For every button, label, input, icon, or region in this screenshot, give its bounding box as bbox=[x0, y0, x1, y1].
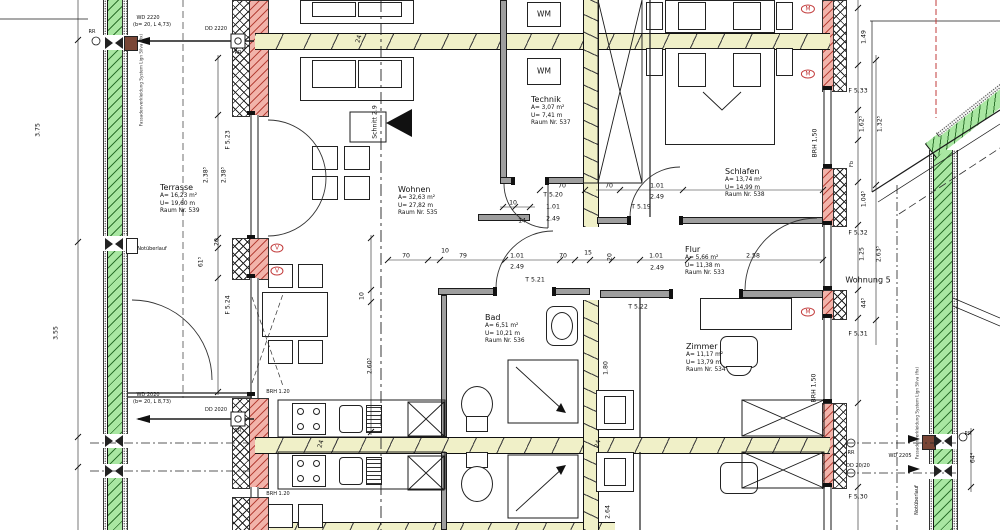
room-label-terrasse: TerrasseA= 16,23 m²U= 19,60 mRaum Nr. 53… bbox=[160, 183, 200, 216]
label-10: 10 bbox=[359, 292, 366, 300]
pillow bbox=[678, 53, 706, 87]
label-dd-20-20: DD 20/20 bbox=[846, 463, 870, 469]
label-1-25: 1.25 bbox=[859, 247, 866, 261]
label-1-01: 1.01 bbox=[546, 204, 560, 211]
room-area: A= 5,66 m² bbox=[685, 255, 725, 263]
label-61: 61⁵ bbox=[198, 257, 205, 267]
room-perimeter: U= 7,41 m bbox=[531, 113, 571, 121]
label-20: 20 bbox=[214, 238, 221, 246]
bad-wall-top-a bbox=[438, 288, 494, 295]
room-perimeter: U= 11,38 m bbox=[685, 263, 725, 271]
dining-table bbox=[262, 292, 328, 337]
bad-wall-top-b bbox=[553, 288, 590, 295]
label-wd-2020: WD 2020 bbox=[136, 392, 159, 398]
dining-chair bbox=[298, 340, 323, 364]
side-table bbox=[344, 146, 370, 170]
label-1-01: 1.01 bbox=[510, 253, 524, 260]
room-perimeter: U= 27,82 m bbox=[398, 203, 438, 211]
label-f-5-30: F 5.30 bbox=[848, 494, 867, 501]
label-wohnung-5: Wohnung 5 bbox=[845, 276, 890, 285]
shaft-wall-upper bbox=[583, 0, 599, 227]
label-2-49: 2.49 bbox=[650, 194, 664, 201]
flur-wall-bottom-a bbox=[600, 290, 670, 298]
nightstand bbox=[776, 2, 793, 30]
section-marker-triangle bbox=[386, 109, 412, 137]
label-f-5-33: F 5.33 bbox=[848, 88, 867, 95]
arrow-icon bbox=[136, 37, 150, 45]
label-b-20-l-4-73: (b= 20, L 4,73) bbox=[133, 22, 171, 28]
room-perimeter: U= 14,99 m bbox=[725, 185, 765, 193]
party-wall-right-insulation bbox=[833, 290, 847, 320]
label-1-80: 1.80 bbox=[603, 361, 610, 375]
desk bbox=[700, 298, 792, 330]
washing-machine bbox=[527, 2, 561, 27]
marker-oval-m: M bbox=[801, 308, 815, 317]
label-1-62: 1.62⁵ bbox=[859, 116, 866, 132]
ceiling-beam-bottom bbox=[255, 437, 830, 454]
label-brh-1-20: BRH 1.20 bbox=[266, 491, 289, 497]
armchair bbox=[344, 176, 370, 200]
party-wall-left-masonry bbox=[249, 497, 269, 530]
label-1-01: 1.01 bbox=[650, 183, 664, 190]
pillow bbox=[733, 2, 761, 30]
label-wd-2220: WD 2220 bbox=[136, 15, 159, 21]
desk-chair bbox=[720, 336, 758, 368]
flur-wall-bottom-b bbox=[740, 290, 823, 298]
window-f533-frame bbox=[823, 90, 832, 168]
room-perimeter: U= 10,21 m bbox=[485, 331, 525, 339]
party-wall-right-insulation bbox=[833, 0, 847, 92]
label-brh-1-50: BRH 1,50 bbox=[811, 374, 818, 403]
dining-chair bbox=[268, 504, 293, 528]
room-area: A= 3,07 m² bbox=[531, 105, 571, 113]
label-10: 10 bbox=[509, 200, 517, 207]
label-rr: RR bbox=[89, 29, 96, 35]
bad-wall-left-lower bbox=[441, 452, 447, 530]
label-2-38: 2.38⁵ bbox=[221, 167, 228, 183]
room-label-bad: BadA= 6,51 m²U= 10,21 mRaum Nr. 536 bbox=[485, 313, 525, 346]
label-1-04: 1.04⁵ bbox=[861, 191, 868, 207]
room-room_no: Raum Nr. 538 bbox=[725, 192, 765, 200]
label-fb: Fb bbox=[849, 161, 855, 167]
toilet-icon bbox=[461, 466, 493, 502]
arrow-icon bbox=[908, 465, 920, 473]
label-f-5-31: F 5.31 bbox=[848, 331, 867, 338]
party-wall-right-insulation bbox=[833, 403, 847, 489]
floorplan-canvas: TerrasseA= 16,23 m²U= 19,60 mRaum Nr. 53… bbox=[0, 0, 1000, 530]
label-t-5-22: T 5.22 bbox=[628, 304, 648, 311]
label-not-berlauf: Notüberlauf bbox=[914, 485, 920, 515]
schlafen-wall-bottom-b bbox=[680, 217, 823, 224]
room-area: A= 32,63 m² bbox=[398, 195, 438, 203]
room-room_no: Raum Nr. 536 bbox=[485, 338, 525, 346]
shower-arrowhead bbox=[556, 465, 566, 475]
label-fassadenverkleidung-system-lign-silva-fix: Fassadenverkleidung System Lign Silva (f… bbox=[139, 34, 144, 126]
room-label-wohnen: WohnenA= 32,63 m²U= 27,82 mRaum Nr. 535 bbox=[398, 185, 438, 218]
facade-connector-block bbox=[124, 36, 138, 51]
room-room_no: Raum Nr. 537 bbox=[531, 120, 571, 128]
facade-connector-block bbox=[922, 435, 936, 450]
technik-wall-left bbox=[500, 0, 507, 182]
stove-icon bbox=[292, 455, 326, 487]
washbasin-bowl bbox=[551, 312, 573, 340]
dining-chair bbox=[298, 504, 323, 528]
nightstand bbox=[646, 2, 663, 30]
room-name: Bad bbox=[485, 313, 525, 323]
label-2-64: 2.64 bbox=[605, 505, 612, 519]
room-area: A= 6,51 m² bbox=[485, 323, 525, 331]
label-70: 70 bbox=[559, 253, 567, 260]
desk-chair-mirrored bbox=[720, 462, 758, 494]
label-schnitt-2-9: Schnitt 2.9 bbox=[372, 105, 379, 139]
label-dd-2020: DD 2020 bbox=[205, 407, 227, 413]
label-64: 64⁴ bbox=[970, 453, 977, 463]
facade-left-joint-gap bbox=[101, 434, 128, 448]
facade-connector-bracket bbox=[126, 238, 138, 254]
cabinet-inner bbox=[604, 396, 626, 424]
label-1-01: 1.01 bbox=[649, 253, 663, 260]
room-room_no: Raum Nr. 535 bbox=[398, 210, 438, 218]
room-name: Flur bbox=[685, 245, 725, 255]
cabinet-inner bbox=[604, 458, 626, 486]
sofa-cushion bbox=[358, 2, 402, 17]
label-f-5-24: F 5.24 bbox=[225, 295, 232, 314]
nightstand bbox=[776, 48, 793, 76]
label-2-38: 2.38⁵ bbox=[203, 167, 210, 183]
room-name: Schlafen bbox=[725, 167, 765, 177]
room-label-flur: FlurA= 5,66 m²U= 11,38 mRaum Nr. 533 bbox=[685, 245, 725, 278]
sofa-cushion bbox=[358, 60, 402, 88]
window-frame bbox=[250, 487, 259, 497]
label-rr: RR bbox=[848, 450, 855, 456]
arrow-icon bbox=[136, 415, 150, 423]
party-wall-right-insulation bbox=[833, 168, 847, 227]
label-t-5-19: T 5.19 bbox=[631, 204, 651, 211]
sofa-cushion bbox=[312, 2, 356, 17]
room-room_no: Raum Nr. 533 bbox=[685, 270, 725, 278]
marker-oval-v: V bbox=[270, 244, 283, 253]
label-f-5-32: F 5.32 bbox=[848, 230, 867, 237]
armchair bbox=[312, 146, 338, 170]
label-3-75: 3.75 bbox=[35, 123, 42, 137]
room-area: A= 13,74 m² bbox=[725, 177, 765, 185]
facade-left-joint-gap bbox=[101, 464, 128, 478]
room-name: Terrasse bbox=[160, 183, 200, 193]
pillow bbox=[733, 53, 761, 87]
label-wd-2205: WD 2205 bbox=[888, 453, 911, 459]
window-f530-frame bbox=[823, 487, 832, 530]
room-name: Technik bbox=[531, 95, 571, 105]
label-70: 70 bbox=[605, 183, 613, 190]
technik-wall-bottom-b bbox=[546, 177, 584, 184]
wohnen-wall-stub bbox=[478, 214, 530, 221]
label-2-49: 2.49 bbox=[650, 265, 664, 272]
dining-chair bbox=[268, 340, 293, 364]
technik-wall-bottom-a bbox=[500, 177, 514, 184]
label-f-5-23: F 5.23 bbox=[225, 130, 232, 149]
bad-wall-left bbox=[441, 295, 447, 437]
marker-oval-m: M bbox=[801, 5, 815, 14]
window-f531-frame bbox=[823, 318, 832, 403]
sink-drainboard bbox=[366, 405, 382, 433]
window-f524-frame bbox=[250, 278, 259, 398]
marker-oval-m: M bbox=[801, 70, 815, 79]
shower-arrowhead bbox=[556, 403, 566, 413]
armchair bbox=[312, 176, 338, 200]
label-brh-1-50: BRH 1,50 bbox=[812, 129, 819, 158]
toilet-tank bbox=[466, 416, 488, 432]
kitchen-sink-icon bbox=[339, 405, 363, 433]
label-2-60: 2.60⁵ bbox=[367, 358, 374, 374]
room-perimeter: U= 19,60 m bbox=[160, 201, 200, 209]
washing-machine bbox=[527, 58, 561, 85]
label-70: 70 bbox=[402, 253, 410, 260]
pillow bbox=[678, 2, 706, 30]
room-area: A= 16,23 m² bbox=[160, 193, 200, 201]
label-2-63: 2.63⁵ bbox=[876, 246, 883, 262]
kitchen-sink-icon bbox=[339, 457, 363, 485]
facade-left-dotband-inner bbox=[122, 0, 128, 530]
label-1-32: 1.32⁵ bbox=[877, 116, 884, 132]
arrow-icon bbox=[908, 435, 920, 443]
room-name: Wohnen bbox=[398, 185, 438, 195]
window-f532-frame bbox=[823, 225, 832, 290]
label-fassadenverkleidung-system-lign-silva-fix: Fassadenverkleidung System Lign Silva (f… bbox=[915, 367, 920, 459]
label-15: 15 bbox=[584, 250, 592, 257]
window-f523-frame bbox=[250, 115, 259, 238]
desk-chair-back bbox=[726, 366, 752, 376]
label-1-49: 1.49 bbox=[861, 30, 868, 44]
label-2-58: 2.58 bbox=[746, 253, 760, 260]
dining-chair bbox=[298, 264, 323, 288]
room-label-technik: TechnikA= 3,07 m²U= 7,41 mRaum Nr. 537 bbox=[531, 95, 571, 128]
label-2-49: 2.49 bbox=[546, 216, 560, 223]
facade-left-joint-gap bbox=[101, 236, 128, 251]
sofa-cushion bbox=[312, 60, 356, 88]
room-room_no: Raum Nr. 539 bbox=[160, 208, 200, 216]
label-b-20-l-8-73: (b= 20, L 8,73) bbox=[133, 399, 171, 405]
nightstand bbox=[646, 48, 663, 76]
party-wall-left-masonry bbox=[249, 0, 269, 117]
stove-icon bbox=[292, 403, 326, 435]
label-brh-1-20: BRH 1.20 bbox=[266, 389, 289, 395]
room-room_no: Raum Nr. 534 bbox=[686, 367, 726, 375]
sink-drainboard bbox=[366, 457, 382, 485]
party-wall-left-masonry bbox=[249, 238, 269, 280]
label-20: 20 bbox=[607, 253, 614, 261]
label-79: 79 bbox=[459, 253, 467, 260]
dining-chair bbox=[268, 264, 293, 288]
facade-right-joint-gap bbox=[927, 464, 957, 479]
room-label-schlafen: SchlafenA= 13,74 m²U= 14,99 mRaum Nr. 53… bbox=[725, 167, 765, 200]
label-2-49: 2.49 bbox=[510, 264, 524, 271]
label-3-55: 3.55 bbox=[53, 326, 60, 340]
label-10: 10 bbox=[441, 248, 449, 255]
label-rr: RR bbox=[965, 431, 972, 437]
label-44: 44⁵ bbox=[861, 298, 868, 308]
label-t-5-21: T 5.21 bbox=[525, 277, 545, 284]
label-not-berlauf: Notüberlauf bbox=[137, 246, 167, 252]
label-t-5-20: T 5.20 bbox=[543, 192, 563, 199]
schlafen-wall-bottom-a bbox=[597, 217, 630, 224]
label-dd-2220: DD 2220 bbox=[205, 26, 227, 32]
